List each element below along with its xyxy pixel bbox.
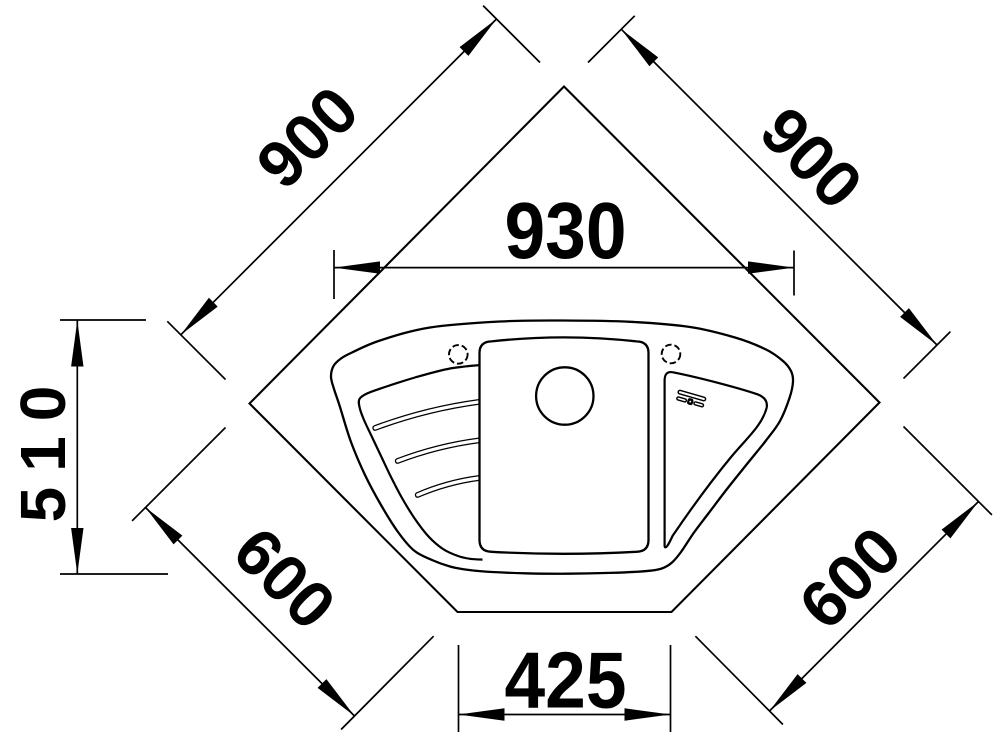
svg-text:425: 425 (505, 636, 627, 725)
svg-text:510: 510 (7, 371, 79, 523)
svg-text:930: 930 (505, 186, 627, 275)
